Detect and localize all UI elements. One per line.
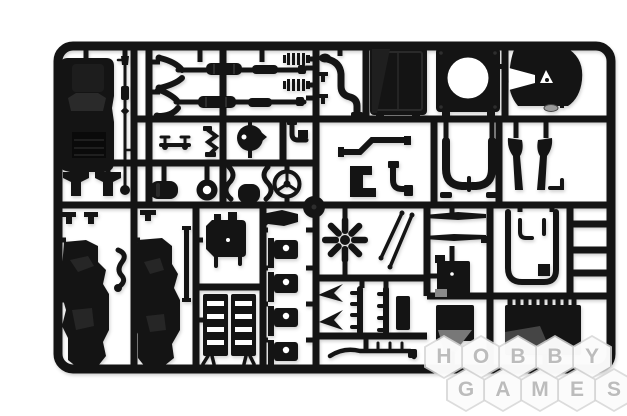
- cab-side-panel-right: [134, 238, 180, 368]
- s-bracket: [114, 250, 124, 292]
- model-kit-sprue-photo: H O B B Y G A M E S: [0, 0, 627, 416]
- clip-row: [62, 210, 156, 224]
- hinge-bracket-column: [262, 210, 298, 366]
- hose-clamps: [319, 72, 328, 104]
- wing-bracket-pair: [318, 284, 343, 330]
- bench-rack: [161, 137, 189, 150]
- pipe-curve-right: [264, 167, 271, 199]
- gear-levers: [379, 211, 415, 270]
- pipe-curve-left: [226, 167, 233, 199]
- battery-box: [435, 255, 470, 297]
- engine-block-halves: [203, 294, 256, 364]
- side-strip: [182, 226, 191, 302]
- exhaust-stacks: [508, 138, 562, 190]
- zigzag-bracket: [203, 126, 216, 157]
- air-cleaner: [237, 121, 267, 158]
- toothed-rail: [330, 343, 417, 358]
- muffler-round: [238, 184, 260, 203]
- engine-mount-left: [63, 172, 89, 196]
- coil-spring-bottom: [283, 79, 316, 91]
- hook-bracket: [388, 161, 413, 196]
- wiper-arm-lower: [424, 234, 488, 243]
- transmission: [206, 212, 246, 266]
- ribbed-toolbox: [505, 298, 581, 355]
- wheel-hub-disc: [303, 196, 325, 218]
- grommet-ring: [197, 180, 218, 201]
- wiper-arm-upper: [424, 212, 486, 222]
- exhaust-assembly-lower: [154, 88, 305, 120]
- step-bracket: [350, 166, 376, 197]
- coil-spring-top: [283, 53, 316, 65]
- radiator-hose: [319, 54, 363, 119]
- storage-box: [436, 305, 474, 352]
- fan-shroud: [436, 48, 506, 117]
- sprue-illustration: [0, 0, 627, 416]
- air-line-loop: [508, 212, 556, 282]
- radiator: [370, 47, 427, 120]
- steering-wheel: [275, 172, 300, 197]
- truck-cab-roof: [60, 58, 114, 172]
- cab-side-panel-left: [62, 240, 109, 368]
- chassis-rail: [338, 136, 411, 157]
- rear-mudguard: [440, 141, 498, 198]
- fifth-wheel-coupling: [509, 50, 582, 106]
- engine-mount-right: [95, 172, 121, 196]
- comb-rail-pair: [352, 289, 410, 332]
- cooling-fan: [322, 217, 368, 263]
- muffler-small: [150, 181, 178, 199]
